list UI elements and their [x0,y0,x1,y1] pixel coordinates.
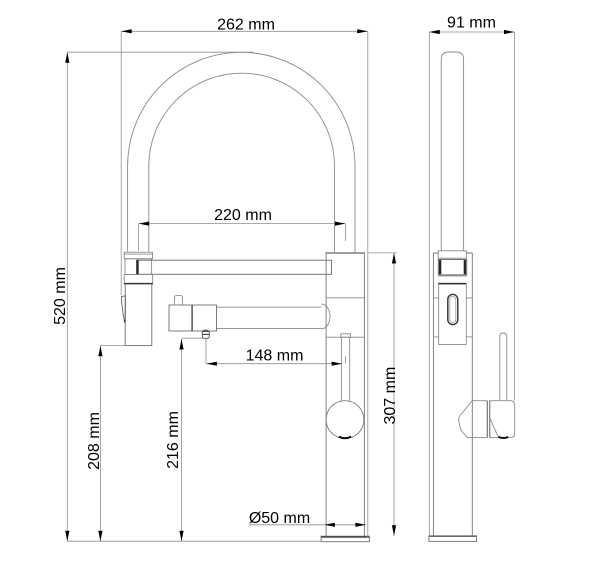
svg-text:91 mm: 91 mm [447,15,496,32]
svg-text:208 mm: 208 mm [86,412,103,470]
svg-text:307 mm: 307 mm [382,367,399,425]
svg-text:Ø50 mm: Ø50 mm [249,510,310,527]
svg-text:220 mm: 220 mm [214,207,272,224]
svg-text:520 mm: 520 mm [52,267,69,325]
svg-text:148 mm: 148 mm [246,347,304,364]
svg-text:262 mm: 262 mm [217,17,275,34]
svg-text:216 mm: 216 mm [165,411,182,469]
